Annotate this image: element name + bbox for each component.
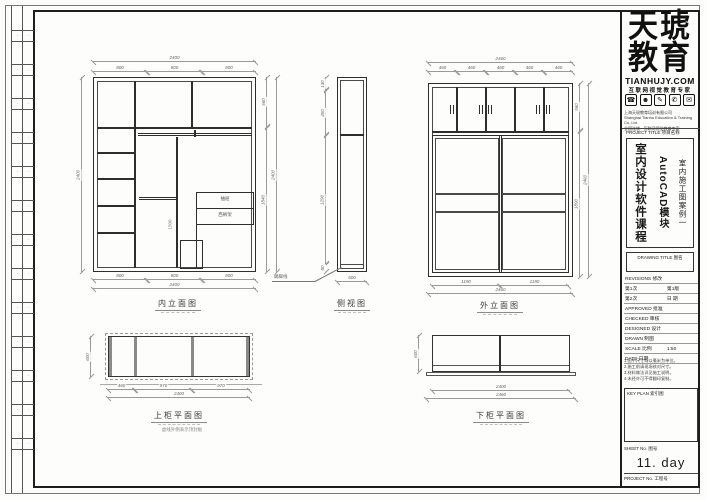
dim-exterior-top-seg: 460 xyxy=(544,71,573,72)
company-line: Shanghai Tianhu Education & Training Co.… xyxy=(624,115,696,125)
dim-exterior-top-seg: 460 xyxy=(515,71,544,72)
cabinet-door-divider xyxy=(456,87,458,131)
door-handle xyxy=(488,105,492,114)
interior-left-column-divider xyxy=(134,129,136,268)
strip-center-line xyxy=(22,6,23,493)
field-label: CHECKED 审核 xyxy=(625,315,659,322)
strip-mark: · xyxy=(23,65,34,75)
title-block: 天琥 教育 TIANHUJY.COM 互联网视觉教育专家 ☎ ☻ ✎ ✆ ✉ 上… xyxy=(622,10,700,488)
shelf-line xyxy=(97,152,134,154)
field-value: 1:50 xyxy=(667,347,676,352)
dim-interior-top-seg: 800 xyxy=(147,71,202,72)
dim-text: 1890 xyxy=(575,198,580,210)
dim-exterior-top-seg: 460 xyxy=(457,71,486,72)
hotline-icon: ✆ xyxy=(669,94,681,106)
dim-interior-bottom-seg: 800 xyxy=(147,279,202,280)
dim-text: 2460 xyxy=(495,393,507,398)
rod-support xyxy=(194,130,196,137)
field-row: DESIGNED 设计 xyxy=(624,324,698,334)
field-row: REVISIONS 修改 xyxy=(624,274,698,284)
upper-plan-note: 虚线外侧表示顶封板 xyxy=(162,428,203,433)
interior-top-divider xyxy=(134,81,136,127)
lower-plan-title: 下柜平面图 xyxy=(473,410,529,423)
dim-upper-plan-seg: 460 xyxy=(108,389,135,390)
strip-mark: · xyxy=(12,65,23,75)
sheet-no-label: SHEET No. 图号 xyxy=(624,446,698,452)
strip-cell-row: ·· xyxy=(12,132,34,144)
leader-line xyxy=(272,281,315,282)
dim-exterior-bottom-seg: 1190 xyxy=(500,285,569,286)
lower-plan-center-divider xyxy=(499,336,501,371)
dim-interior-right-seg: 1840 xyxy=(266,127,267,272)
dim-upper-plan-depth: 600 xyxy=(90,336,91,377)
strip-cell-row: ·· xyxy=(12,30,34,42)
dim-text: 800 xyxy=(224,274,234,279)
dim-interior-top-seg: 800 xyxy=(202,71,256,72)
dim-text: 1840 xyxy=(262,193,267,205)
dim-interior-top-total: 2400 xyxy=(93,61,256,62)
cad-drawing-sheet: ·· ·· ·· ·· ·· ·· ·· ·· ·· ·· ·· ·· ·· 抽… xyxy=(0,0,707,500)
strip-mark: · xyxy=(23,337,34,347)
upper-plan-divider xyxy=(134,337,137,376)
door-rail-line xyxy=(435,211,499,213)
dim-text: 1190 xyxy=(529,280,541,285)
interior-center-divider xyxy=(176,137,178,268)
dim-text: 460 xyxy=(438,66,448,71)
key-plan-box: KEY PLAN 索引图 xyxy=(624,388,698,442)
dim-text: 560 xyxy=(262,97,267,107)
dim-text: 800 xyxy=(115,274,125,279)
cabinet-door-divider xyxy=(485,87,487,131)
dim-text: 460 xyxy=(525,66,535,71)
dim-text: 2460 xyxy=(494,288,506,293)
dim-text: 800 xyxy=(115,66,125,71)
side-top-section-line xyxy=(340,134,364,136)
door-rail-line xyxy=(435,193,499,195)
dim-side-seg: 1290 xyxy=(325,135,326,264)
strip-mark: · xyxy=(12,439,23,449)
field-label: DESIGNED 设计 xyxy=(625,325,661,332)
strip-mark: · xyxy=(23,405,34,415)
dim-text: 460 xyxy=(554,66,564,71)
dim-exterior-right-seg: 1890 xyxy=(579,131,580,277)
strip-cell-row: ·· xyxy=(12,438,34,450)
dim-text: 2460 xyxy=(494,57,506,62)
strip-cell-row: ·· xyxy=(12,336,34,348)
field-row: 第1次第1版 xyxy=(624,284,698,294)
dim-text: 2400 xyxy=(173,392,185,397)
interior-mid-dim-text: 1500 xyxy=(169,219,174,229)
dim-exterior-bottom-seg: 1190 xyxy=(432,285,500,286)
field-label: 第2次 xyxy=(625,295,637,302)
dim-lower-plan-depth: 600 xyxy=(418,335,419,372)
dim-text: 800 xyxy=(170,66,180,71)
dim-text: 2400 xyxy=(77,168,82,180)
field-value: 日 期 xyxy=(667,295,678,302)
lower-plan-track-line xyxy=(433,365,569,366)
dim-text: 600 xyxy=(86,352,91,362)
dim-interior-bottom-seg: 800 xyxy=(202,279,256,280)
shelf-line xyxy=(97,178,134,180)
strip-mark: · xyxy=(23,167,34,177)
cabinet-door-divider xyxy=(543,87,545,131)
user-icon: ☻ xyxy=(640,94,652,106)
dim-interior-left-total: 2400 xyxy=(81,77,82,272)
strip-cell-row: ·· xyxy=(12,200,34,212)
dim-lower-plan-total: 2460 xyxy=(426,398,576,399)
baseboard-note: 踢脚线 xyxy=(274,275,288,280)
project-line: AutoCAD模块 xyxy=(655,156,670,229)
dim-exterior-bottom-total: 2460 xyxy=(428,293,573,294)
general-notes: 1.图中尺寸均以毫米为单位。 2.施工前请现场核对尺寸。 3.材料做法详见施工说… xyxy=(624,358,698,382)
strip-mark: · xyxy=(12,99,23,109)
strip-mark: · xyxy=(23,99,34,109)
strip-mark: · xyxy=(12,405,23,415)
strip-mark: · xyxy=(12,167,23,177)
door-rail-line xyxy=(502,193,566,195)
exterior-top-row-line xyxy=(432,131,569,133)
dim-text: 2400 xyxy=(495,385,507,390)
dim-interior-right-total: 2400 xyxy=(276,77,277,272)
field-row: CHECKED 审核 xyxy=(624,314,698,324)
dim-exterior-top-seg: 460 xyxy=(428,71,457,72)
door-handle xyxy=(450,105,454,114)
dim-text: 2400 xyxy=(168,283,180,288)
interior-top-row-shelf xyxy=(97,127,252,129)
project-line: 室内施工图案例一 xyxy=(677,159,688,227)
mail-icon: ✉ xyxy=(683,94,695,106)
strip-mark: · xyxy=(12,371,23,381)
dim-text: 800 xyxy=(170,274,180,279)
strip-mark: · xyxy=(12,337,23,347)
drawer-label: 抽屉 xyxy=(221,197,230,202)
strip-mark: · xyxy=(23,133,34,143)
field-value: 第1版 xyxy=(667,285,679,292)
dim-text: 460 xyxy=(496,66,506,71)
sheet-no-value: 11. day xyxy=(624,455,698,470)
strip-mark: · xyxy=(23,269,34,279)
titleblock-rule xyxy=(622,128,700,129)
dim-text: 1290 xyxy=(321,193,326,205)
strip-mark: · xyxy=(12,303,23,313)
strip-mark: · xyxy=(23,31,34,41)
sliding-door-right-panel xyxy=(502,138,566,270)
dim-exterior-right-total: 2460 xyxy=(588,83,589,277)
strip-cell-row: ·· xyxy=(12,302,34,314)
lower-plan-front-board xyxy=(426,372,576,376)
field-row: APPROVED 批准 xyxy=(624,304,698,314)
dim-text: 970 xyxy=(216,384,226,389)
note-line: 4.未经许可不得翻印复制。 xyxy=(624,376,698,382)
dim-side-seg: 130 xyxy=(325,77,326,90)
upper-plan-divider xyxy=(191,337,194,376)
cabinet-door-divider xyxy=(514,87,516,131)
strip-cell-row: ·· xyxy=(12,166,34,178)
brand-logo-text-2: 教育 xyxy=(622,43,698,75)
door-handle xyxy=(546,105,550,114)
phone-icon: ☎ xyxy=(625,94,637,106)
strip-mark: · xyxy=(12,133,23,143)
dim-upper-plan-seg: 970 xyxy=(135,389,192,390)
brand-logo-text-1: 天琥 xyxy=(622,11,698,43)
upper-plan-side-panel xyxy=(246,337,249,376)
hanging-rod-lower xyxy=(139,197,176,200)
interior-top-divider xyxy=(191,81,193,127)
dim-text: 450 xyxy=(321,108,326,118)
project-no-label: PROJECT No. 工程号 xyxy=(624,476,698,482)
field-label: DRAWN 制图 xyxy=(625,335,654,342)
strip-mark: · xyxy=(12,201,23,211)
field-row: 第2次日 期 xyxy=(624,294,698,304)
dim-lower-plan-inner: 2400 xyxy=(432,390,570,391)
door-rail-line xyxy=(502,211,566,213)
dim-text: 2400 xyxy=(168,56,180,61)
door-handle xyxy=(536,105,540,114)
interior-inner-outline xyxy=(97,81,252,268)
pencil-icon: ✎ xyxy=(654,94,666,106)
sheet-no-rule xyxy=(624,473,698,474)
side-view-inner xyxy=(340,80,364,269)
dim-interior-bottom-seg: 800 xyxy=(93,279,147,280)
dim-exterior-top-total: 2460 xyxy=(428,62,573,63)
exterior-elevation-title: 外立面图 xyxy=(477,300,523,313)
dim-text: 2460 xyxy=(584,174,589,186)
upper-plan-title: 上柜平面图 xyxy=(151,410,207,423)
strip-cell-row: ·· xyxy=(12,370,34,382)
side-bottom-line xyxy=(340,264,364,265)
drawing-title-box: DRAWING TITLE 图名 xyxy=(626,252,694,272)
project-line: 室内设计软件课程 xyxy=(632,143,648,243)
strip-mark: · xyxy=(12,31,23,41)
dim-interior-right-seg: 560 xyxy=(266,77,267,127)
dim-interior-bottom-total: 2400 xyxy=(93,288,256,289)
contact-icons-row: ☎ ☻ ✎ ✆ ✉ xyxy=(625,94,695,106)
dim-exterior-top-seg: 460 xyxy=(486,71,515,72)
interior-elevation-title: 内立面图 xyxy=(155,298,201,311)
dim-upper-plan-seg: 970 xyxy=(192,389,250,390)
field-label: SCALE 比例 xyxy=(625,345,652,352)
shelf-line xyxy=(97,205,134,207)
binding-strip: ·· ·· ·· ·· ·· ·· ·· ·· ·· ·· ·· ·· ·· xyxy=(11,6,33,493)
drawer-divider-line xyxy=(196,208,254,209)
strip-cell-row: ·· xyxy=(12,98,34,110)
strip-mark: · xyxy=(12,235,23,245)
strip-mark: · xyxy=(12,269,23,279)
strip-cell-row: ·· xyxy=(12,234,34,246)
field-row: DRAWN 制图 xyxy=(624,334,698,344)
field-label: APPROVED 批准 xyxy=(625,305,663,312)
strip-mark: · xyxy=(23,235,34,245)
upper-plan-side-panel xyxy=(109,337,112,376)
dim-text: 970 xyxy=(159,384,169,389)
field-row: SCALE 比例1:50 xyxy=(624,344,698,354)
strip-cell-row: ·· xyxy=(12,64,34,76)
dim-text: 2400 xyxy=(272,168,277,180)
dim-text: 460 xyxy=(467,66,477,71)
upper-plan-outline xyxy=(108,336,250,377)
dim-side-seg: 450 xyxy=(325,90,326,135)
brand-tagline: 互联网视觉教育专家 xyxy=(622,86,698,94)
field-label: REVISIONS 修改 xyxy=(625,275,662,282)
project-title-label: PROJECT TITLE 项目名称 xyxy=(626,130,680,136)
dim-text: 600 xyxy=(414,349,419,359)
strip-cell-row: ·· xyxy=(12,268,34,280)
strip-mark: · xyxy=(23,439,34,449)
lower-plan-outline xyxy=(432,335,570,372)
dim-upper-plan-total: 2400 xyxy=(108,397,250,398)
project-title-box: 室内设计软件课程 AutoCAD模块 室内施工图案例一 xyxy=(626,138,694,248)
dim-text: 80 xyxy=(321,264,326,271)
trouser-rack-label: 西裤架 xyxy=(218,213,232,218)
strip-mark: · xyxy=(23,201,34,211)
dim-text: 1190 xyxy=(460,280,472,285)
field-label: 第1次 xyxy=(625,285,637,292)
titleblock-fields: REVISIONS 修改 第1次第1版 第2次日 期 APPROVED 批准 C… xyxy=(624,274,698,364)
dim-text: 560 xyxy=(575,102,580,112)
key-plan-label: KEY PLAN 索引图 xyxy=(627,391,664,397)
dim-text: 130 xyxy=(321,79,326,89)
shelf-line xyxy=(97,232,134,234)
brand-website: TIANHUJY.COM xyxy=(622,76,698,86)
dim-side-seg: 80 xyxy=(325,264,326,272)
strip-mark: · xyxy=(23,303,34,313)
strip-cell-row: ·· xyxy=(12,404,34,416)
dim-text: 800 xyxy=(224,66,234,71)
dim-text: 460 xyxy=(117,384,127,389)
dim-side-bottom: 600 xyxy=(337,281,367,282)
dim-exterior-right-seg: 560 xyxy=(579,83,580,131)
dim-text: 600 xyxy=(347,276,357,281)
side-view-title: 侧视图 xyxy=(334,298,370,311)
dim-interior-top-seg: 800 xyxy=(93,71,147,72)
sheet-number-block: SHEET No. 图号 11. day PROJECT No. 工程号 xyxy=(624,446,698,482)
small-compartment xyxy=(180,240,203,269)
door-handle xyxy=(479,105,483,114)
strip-mark: · xyxy=(23,371,34,381)
sliding-door-left-panel xyxy=(435,138,499,270)
